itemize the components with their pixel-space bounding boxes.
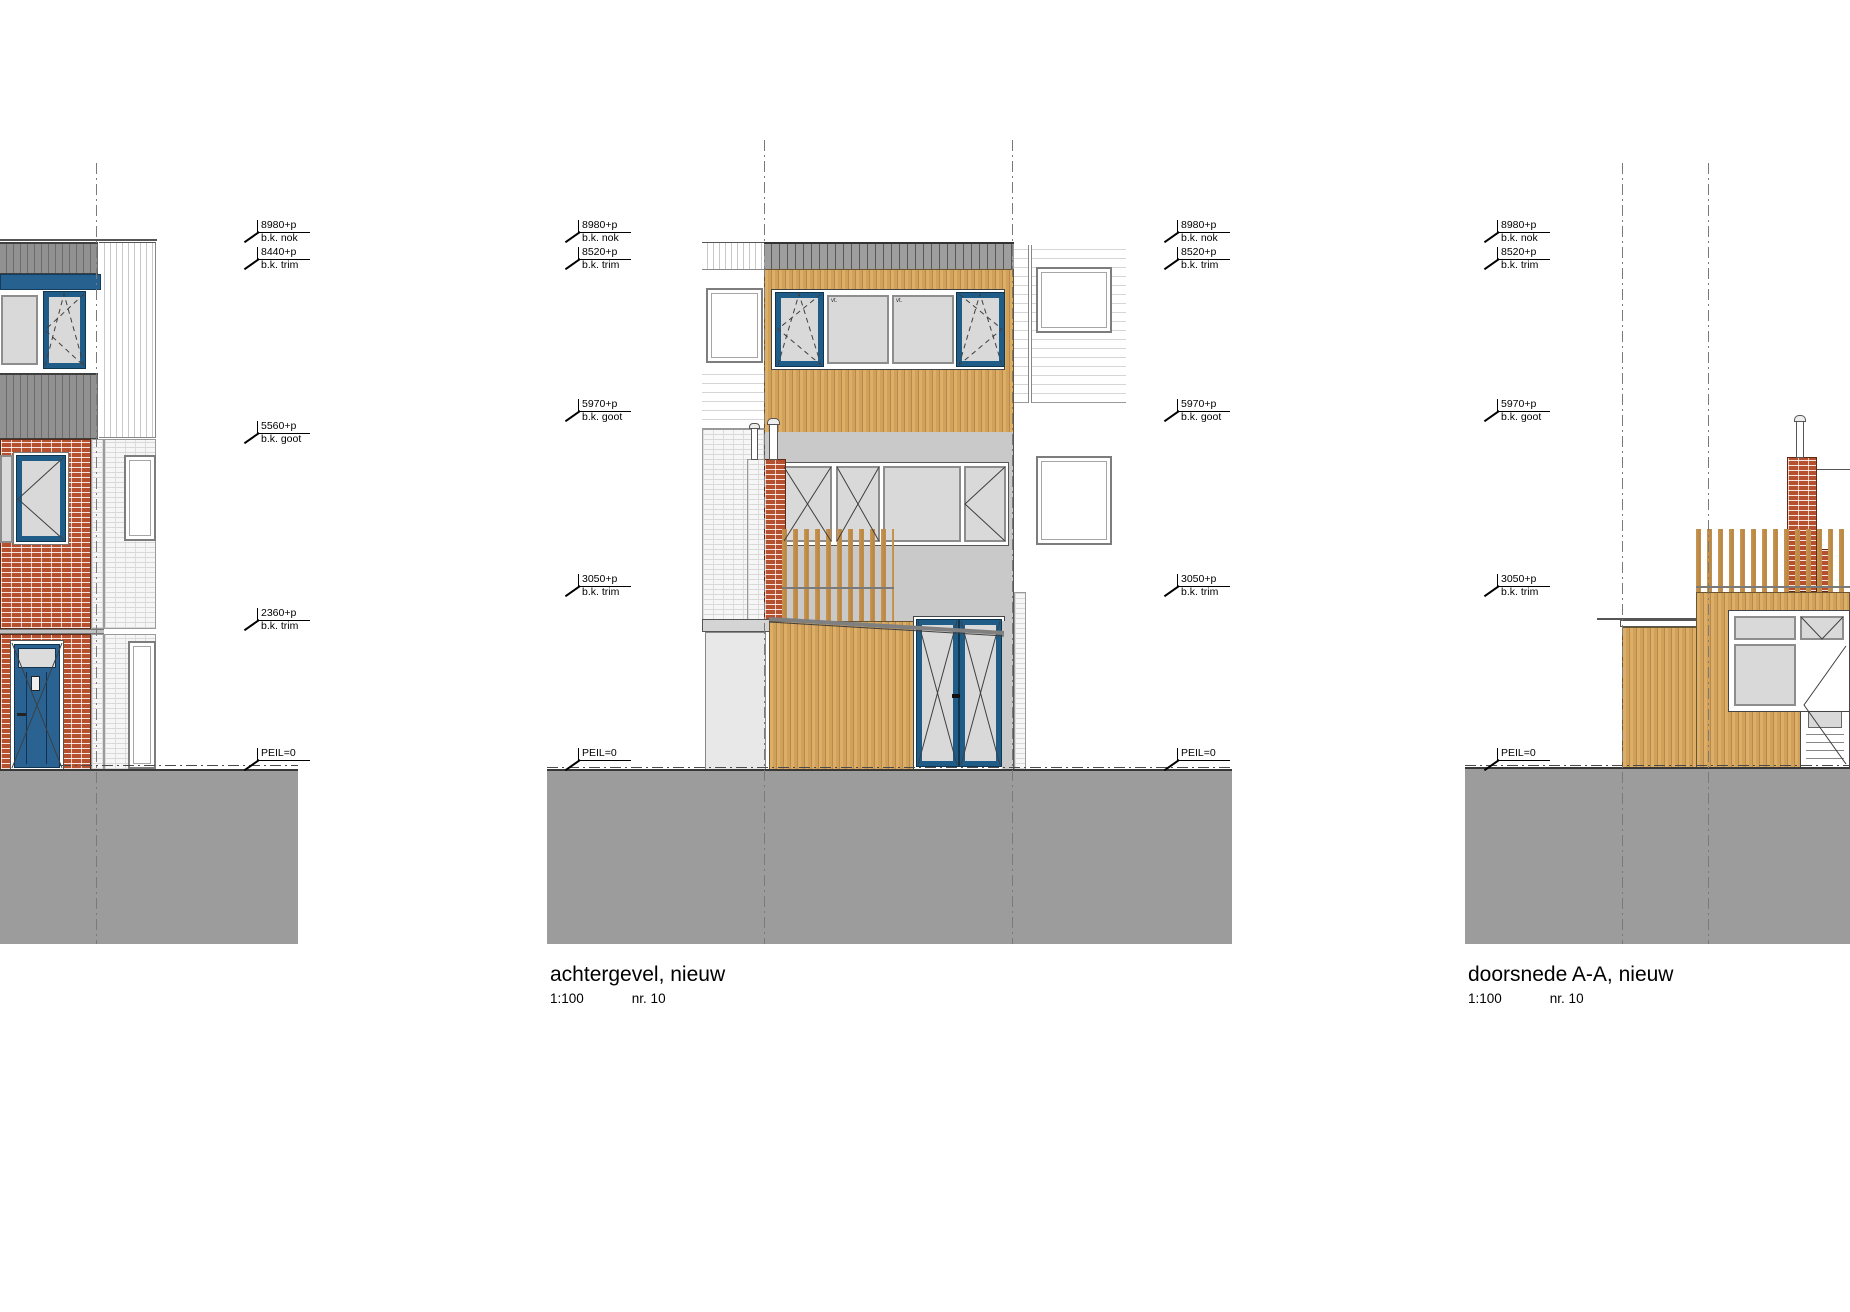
sec-balustrade-rail-line [1696,586,1850,588]
sec-balcony-slat-balustrade [1696,529,1850,592]
sec-centerline-right [1708,163,1709,944]
level-ref: b.k. goot [1497,412,1550,423]
mid-ground-mass [547,769,1232,944]
mid-french-door-right-leaf [960,620,1001,766]
level-marker-peil: PEIL=0 [1177,748,1230,761]
level-marker-trim-high: 8520+p b.k. trim [578,247,631,271]
mid-balcony-slat-balustrade [782,529,894,621]
level-ref: b.k. nok [1177,233,1230,244]
level-value: PEIL=0 [1177,748,1230,761]
level-marker-goot: 5970+p b.k. goot [578,399,631,423]
mid-neighbor-left-trim-strip [702,242,764,270]
sec-ground-mass [1465,767,1850,944]
mid-vent-pipe-2-cap [767,418,780,425]
sec-centerline-left [1622,163,1623,944]
section-title-block: doorsnede A-A, nieuw 1:100nr. 10 [1468,963,1673,1006]
left-party-pilaster-upper [91,439,104,629]
mid-top-fixed-pane-2: vt. [892,295,954,364]
section-scale: 1:100 [1468,991,1502,1006]
left-brick-window [17,456,65,541]
left-door-transom [18,648,56,668]
mid-balustrade-rail-line [782,587,894,589]
level-ref: b.k. trim [1497,587,1550,598]
level-value: PEIL=0 [257,748,310,761]
left-party-centerline [96,163,97,944]
mid-vent-pipe-1-cap [749,423,760,429]
left-door-vision-panel [31,676,40,691]
mid-vent-pipe-2 [769,424,778,460]
mid-neighbor-right-downpipe [1028,245,1032,403]
level-value: PEIL=0 [1497,748,1550,761]
left-roof-line [0,239,157,241]
mid-neighbor-left-siding [702,366,765,429]
sec-chimney-leader-line [1817,469,1850,470]
mid-neighbor-right-window [1036,267,1112,333]
level-marker-nok: 8980+p b.k. nok [578,220,631,244]
rear-facade-sheet-number: nr. 10 [632,991,666,1006]
level-marker-trim-low: 3050+p b.k. trim [1497,574,1550,598]
left-top-casement-window [44,292,85,368]
level-ref: b.k. trim [1177,260,1230,271]
mid-top-casement-right [957,293,1004,366]
left-top-fixed-pane [1,295,38,365]
left-ground-mass [0,769,298,944]
level-marker-goot: 5970+p b.k. goot [1497,399,1550,423]
mid-vent-pipe-1 [751,428,758,460]
left-door-groove-1 [26,672,27,764]
left-neighbor-garage-opening [128,641,156,769]
section-sheet-number: nr. 10 [1550,991,1584,1006]
level-ref: b.k. trim [257,621,310,632]
level-ref: b.k. goot [1177,412,1230,423]
level-marker-nok: 8980+p b.k. nok [1497,220,1550,244]
mid-extension-slab [702,619,778,632]
level-marker-trim-low: 3050+p b.k. trim [1177,574,1230,598]
level-marker-goot: 5970+p b.k. goot [1177,399,1230,423]
level-ref: b.k. trim [578,587,631,598]
mid-middle-pane-3 [883,466,961,542]
drawing-sheet: vt. vt. [0,0,1850,1312]
mid-neighbor-right-brick-strip [1014,592,1026,770]
sec-main-pane [1734,644,1796,706]
sec-door-louver-1 [1806,734,1844,735]
sec-transom-pane-2 [1800,616,1844,640]
mid-door-handle [952,694,960,698]
level-ref: b.k. trim [257,260,310,271]
level-ref: b.k. nok [1497,233,1550,244]
level-ref: b.k. goot [578,412,631,423]
level-ref: b.k. nok [257,233,310,244]
mid-party-centerline-left [764,140,765,944]
mid-peil-dashline [547,767,1232,768]
sec-door-louver-4 [1806,758,1844,759]
mid-wood-ground-wall [769,621,915,770]
section-title: doorsnede A-A, nieuw [1468,963,1673,987]
level-marker-trim-high: 8440+p b.k. trim [257,247,310,271]
level-marker-peil: PEIL=0 [257,748,310,761]
level-marker-trim-high: 8520+p b.k. trim [1177,247,1230,271]
left-roof-slat-band [0,242,98,274]
mid-roof-trim-band [764,242,1014,270]
mid-middle-pane-4 [964,466,1006,542]
level-ref: b.k. trim [578,260,631,271]
level-marker-goot: 5560+p b.k. goot [257,421,310,445]
left-door-groove-2 [46,672,47,764]
sec-peil-dashline [1465,765,1850,766]
level-ref: b.k. nok [578,233,631,244]
level-ref: b.k. trim [1497,260,1550,271]
level-marker-trim-high: 8520+p b.k. trim [1497,247,1550,271]
level-ref: b.k. trim [1177,587,1230,598]
left-party-pilaster-lower [91,634,104,770]
mid-french-door-left-leaf [917,620,958,766]
window-code-label: vt. [831,298,837,304]
left-neighbor-slat-strip [99,242,156,438]
mid-chimney-white-brick [747,459,765,621]
level-value: PEIL=0 [578,748,631,761]
left-door-handle [17,713,26,716]
mid-party-centerline-right [1012,140,1013,944]
level-marker-peil: PEIL=0 [578,748,631,761]
level-marker-trim-low: 3050+p b.k. trim [578,574,631,598]
sec-door-louver-2 [1806,742,1844,743]
level-marker-trim-low: 2360+p b.k. trim [257,608,310,632]
mid-top-fixed-pane-1: vt. [827,295,889,364]
sec-vent-pipe-cap [1794,415,1806,422]
rear-facade-title: achtergevel, nieuw [550,963,725,987]
level-marker-nok: 8980+p b.k. nok [1177,220,1230,244]
sec-door-louver-3 [1806,750,1844,751]
sec-transom-pane-1 [1734,616,1796,640]
left-neighbor-window [124,455,156,541]
level-marker-peil: PEIL=0 [1497,748,1550,761]
window-code-label: vt. [896,298,902,304]
left-spandrel-slat-band [0,373,98,439]
rear-facade-scale: 1:100 [550,991,584,1006]
left-brick-floor-pane-fragment [0,455,13,543]
mid-neighbor-left-window [706,288,763,363]
sec-vent-pipe [1796,421,1804,458]
level-ref: b.k. goot [257,434,310,445]
mid-neighbor-right-lower-opening [1036,456,1112,545]
rear-facade-title-block: achtergevel, nieuw 1:100nr. 10 [550,963,725,1006]
mid-top-casement-left [776,293,823,366]
mid-extension-wall [705,632,766,770]
left-blue-fascia [0,274,101,290]
level-marker-nok: 8980+p b.k. nok [257,220,310,244]
